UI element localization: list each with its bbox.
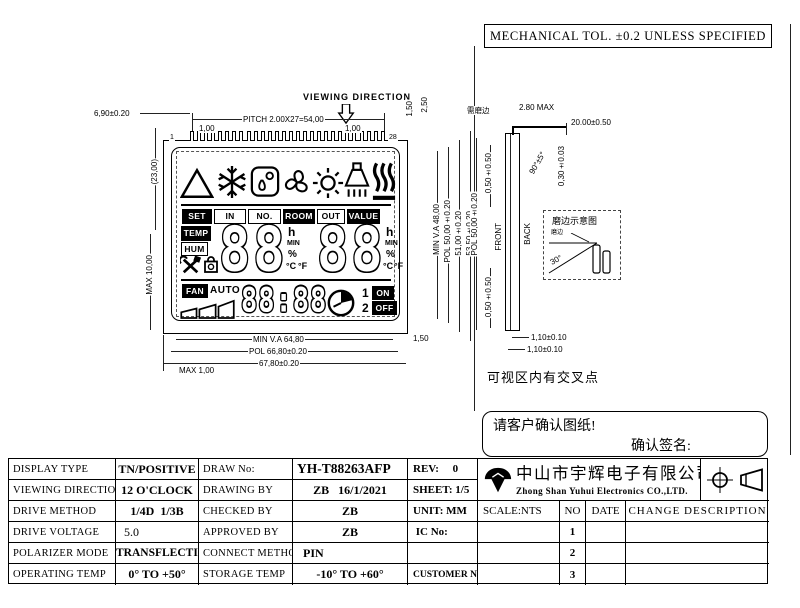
dim-lead-length: 6,90±0.20 xyxy=(93,109,131,118)
projection-symbol-icon xyxy=(705,465,765,495)
info-cell-customer: CUSTOMER No. xyxy=(408,564,478,585)
dim-right-pol: POL 50,00±0.20 xyxy=(443,199,452,264)
spec-label-cell: DISPLAY TYPE xyxy=(9,459,116,480)
doc-label: DRAW No: xyxy=(199,464,255,475)
unit-min-right: MIN xyxy=(385,240,398,247)
dim-pitch: PITCH 2.00X27=54,00 xyxy=(242,115,325,124)
company-name-cn: 中山市宇辉电子有限公司 xyxy=(516,460,701,484)
pin xyxy=(275,131,279,141)
dim-side-top-max: 2.80 MAX xyxy=(518,103,555,112)
rev-date-cell xyxy=(586,522,626,543)
doc-value: PIN xyxy=(293,546,407,561)
doc-value: ZB xyxy=(293,504,407,519)
sign-label: 确认签名: xyxy=(631,435,691,455)
dim-bottom-va: MIN V.A 64,80 xyxy=(252,335,305,344)
doc-value-cell: ZB 16/1/2021 xyxy=(293,480,408,501)
hood-icon xyxy=(344,161,370,201)
dim-gap-right: 1,00 xyxy=(344,124,362,133)
spec-value-cell: 12 O'CLOCK xyxy=(116,480,199,501)
lcd-label-hum: HUM xyxy=(181,242,208,256)
pin xyxy=(324,131,328,141)
doc-value: YH-T88263AFP xyxy=(293,461,407,477)
projection-symbol-cell xyxy=(701,459,769,501)
dim-lead-line xyxy=(140,113,190,114)
doc-value-cell: ZB xyxy=(293,501,408,522)
rev-desc-cell xyxy=(626,522,769,543)
unit-min-left: MIN xyxy=(287,240,300,247)
pin xyxy=(317,131,321,141)
doc-label: DRAWING BY xyxy=(199,485,273,496)
spec-value: TN/POSITIVE xyxy=(116,462,198,477)
doc-label: STORAGE TEMP xyxy=(199,569,285,580)
viewing-direction-label: VIEWING DIRECTION xyxy=(302,93,412,102)
dim-gap-left: 1,00 xyxy=(198,124,216,133)
spec-value: 0° TO +50° xyxy=(116,567,198,582)
separator-line-1 xyxy=(181,204,391,206)
main-digits-left: 88 xyxy=(219,227,288,274)
doc-label-cell: CHECKED BY xyxy=(199,501,293,522)
spec-label: DRIVE VOLTAGE xyxy=(9,527,99,538)
rev-no-2: 2 xyxy=(570,547,576,559)
rev-date-cell xyxy=(586,564,626,585)
lcd-label-room: ROOM xyxy=(283,209,315,224)
dim-side-b2-line xyxy=(508,349,525,350)
dim-left-max: MAX 10,00 xyxy=(145,254,154,296)
unit-pct-right: % xyxy=(386,249,395,260)
side-back-label: BACK xyxy=(523,222,532,246)
unit-pct-left: % xyxy=(288,249,297,260)
rev-date-cell xyxy=(586,543,626,564)
doc-value-cell: PIN xyxy=(293,543,408,564)
doc-value: ZB xyxy=(293,525,407,540)
side-view-layer-line xyxy=(510,134,511,330)
title-block: DISPLAY TYPE TN/POSITIVE VIEWING DIRECTI… xyxy=(8,458,768,584)
rev-no-cell: 2 xyxy=(560,543,586,564)
pin xyxy=(247,131,251,141)
dim-top-t1: 1,50 xyxy=(405,100,414,118)
lock-icon xyxy=(204,256,218,273)
dim-side-b1-line xyxy=(512,337,529,338)
pin xyxy=(289,131,293,141)
lcd-label-fan: FAN xyxy=(182,284,208,298)
info-unit: UNIT: MM xyxy=(408,505,467,517)
lcd-label-auto: AUTO xyxy=(210,285,240,296)
side-grind-note: 需磨边 xyxy=(466,106,491,115)
doc-label: CONNECT METHOD xyxy=(199,548,293,559)
spec-value: 1/4D 1/3B xyxy=(116,504,198,519)
pin xyxy=(331,131,335,141)
unit-h-left: h xyxy=(288,225,295,239)
rev-no-cell: 3 xyxy=(560,564,586,585)
doc-label: APPROVED BY xyxy=(199,527,279,538)
confirm-box: 请客户确认图纸! 确认签名: xyxy=(482,411,768,457)
rev-header-no-label: NO xyxy=(565,505,581,517)
side-front-label: FRONT xyxy=(494,222,503,252)
doc-label-cell: CONNECT METHOD xyxy=(199,543,293,564)
company-logo xyxy=(483,466,513,494)
dim-right-glass: 51,00±0.20 xyxy=(454,210,463,257)
dim-side-b2: 1,10±0.10 xyxy=(526,345,564,354)
info-cell-blank xyxy=(408,543,478,564)
snowflake-icon xyxy=(216,162,248,202)
pin xyxy=(310,131,314,141)
rev-blank-cell xyxy=(478,564,560,585)
dim-side-bot-off: 0,50±0.50 xyxy=(484,276,493,318)
dim-side-pin-th: 0,30±0.03 xyxy=(557,145,566,187)
dim-bottom-pol: POL 66,80±0.20 xyxy=(248,347,308,356)
scale-label: SCALE:NTS xyxy=(478,505,542,517)
lcd-label-temp: TEMP xyxy=(181,226,211,241)
pin xyxy=(190,131,194,141)
pin xyxy=(254,131,258,141)
spec-value: TRANSFLECTIVE xyxy=(116,547,198,559)
spec-label: POLARIZER MODE xyxy=(9,548,109,559)
rev-header-date-label: DATE xyxy=(591,505,619,517)
spec-label: OPERATING TEMP xyxy=(9,569,106,580)
grind-detail-box: 磨边示意图 磨边 30° xyxy=(543,210,621,280)
dim-side-angle: 90°±5° xyxy=(527,149,548,176)
dim-side-pin-tick xyxy=(566,123,567,135)
pin xyxy=(374,131,378,141)
pin xyxy=(303,131,307,141)
spec-label: DISPLAY TYPE xyxy=(9,464,88,475)
lcd-label-off: OFF xyxy=(372,301,397,315)
spec-label: VIEWING DIRECTION xyxy=(9,485,116,496)
defrost-icon xyxy=(250,165,280,198)
info-sheet: SHEET: 1/5 xyxy=(408,484,469,496)
fan-icon xyxy=(282,166,312,199)
pin xyxy=(218,131,222,141)
rev-header-no: NO xyxy=(560,501,586,522)
pin-number-last: 28 xyxy=(388,133,398,142)
dim-side-pol: POL 50,00±0.20 xyxy=(470,192,479,257)
rev-desc-cell xyxy=(626,543,769,564)
unit-f-left: °F xyxy=(298,261,307,271)
rev-blank-cell xyxy=(478,522,560,543)
spec-label-cell: VIEWING DIRECTION xyxy=(9,480,116,501)
doc-label: CHECKED BY xyxy=(199,506,273,517)
pin xyxy=(261,131,265,141)
dim-top-t2: 2,50 xyxy=(420,96,429,114)
dim-right-bottom: 1,50 xyxy=(412,334,430,343)
warning-triangle-icon xyxy=(180,167,214,200)
rev-desc-cell xyxy=(626,564,769,585)
frame-right-line xyxy=(790,24,791,455)
spec-value-cell: TRANSFLECTIVE xyxy=(116,543,199,564)
rev-header-desc-label: CHANGE DESCRIPTION xyxy=(628,505,766,517)
pin xyxy=(296,131,300,141)
side-view-glass xyxy=(505,133,520,331)
doc-value-cell: -10° TO +60° xyxy=(293,564,408,585)
info-cell-unit: UNIT: MM xyxy=(408,501,478,522)
grind-detail-sketch: 30° xyxy=(545,233,619,277)
dim-side-pin-len: 20.00±0.50 xyxy=(570,118,612,127)
dim-right-va: MIN V.A 48,00 xyxy=(432,203,441,256)
doc-label-cell: DRAW No: xyxy=(199,459,293,480)
spec-value-cell: TN/POSITIVE xyxy=(116,459,199,480)
rev-no-1: 1 xyxy=(570,526,576,538)
info-ic-no: IC No: xyxy=(408,526,448,538)
spec-label-cell: DRIVE METHOD xyxy=(9,501,116,522)
pin xyxy=(381,131,385,141)
tolerance-box: MECHANICAL TOL. ±0.2 UNLESS SPECIFIED xyxy=(484,24,772,48)
main-digits-right: 88 xyxy=(317,227,386,274)
spec-value-cell: 0° TO +50° xyxy=(116,564,199,585)
spec-value: 5.0 xyxy=(116,525,198,540)
doc-label-cell: APPROVED BY xyxy=(199,522,293,543)
rev-header-date: DATE xyxy=(586,501,626,522)
dim-pitch-tick-right xyxy=(384,113,385,131)
cross-point-note: 可视区内有交叉点 xyxy=(487,367,599,386)
spec-label-cell: POLARIZER MODE xyxy=(9,543,116,564)
sun-icon xyxy=(312,167,344,199)
pin xyxy=(239,131,243,141)
company-cell: 中山市宇辉电子有限公司 Zhong Shan Yuhui Electronics… xyxy=(478,459,701,501)
side-view-pin-bend xyxy=(512,126,566,128)
clock-icon xyxy=(326,288,356,318)
grind-detail-title: 磨边示意图 xyxy=(552,214,597,227)
lcd-label-on: ON xyxy=(372,286,394,300)
lcd-label-set: SET xyxy=(182,209,212,224)
spec-label-cell: OPERATING TEMP xyxy=(9,564,116,585)
doc-value: -10° TO +60° xyxy=(293,567,407,582)
clock-digits: 88:88 xyxy=(241,285,327,318)
company-name-en: Zhong Shan Yuhui Electronics CO.,LTD. xyxy=(516,486,701,496)
viewing-direction-arrow-icon xyxy=(337,104,355,124)
dim-side-b1: 1,10±0.10 xyxy=(530,333,568,342)
unit-h-right: h xyxy=(386,225,393,239)
pin xyxy=(282,131,286,141)
tools-icon xyxy=(180,256,202,275)
info-cell-ic: IC No: xyxy=(408,522,478,543)
timer-2-digit: 2 xyxy=(362,301,369,315)
spec-value-cell: 5.0 xyxy=(116,522,199,543)
doc-value: ZB 16/1/2021 xyxy=(293,483,407,498)
pin xyxy=(338,131,342,141)
dim-pitch-tick-left xyxy=(192,113,193,131)
scale-cell: SCALE:NTS xyxy=(478,501,560,522)
dim-bottom-total: 67,80±0.20 xyxy=(258,359,300,368)
drawing-sheet: MECHANICAL TOL. ±0.2 UNLESS SPECIFIED VI… xyxy=(0,0,800,608)
doc-value-cell: ZB xyxy=(293,522,408,543)
heat-icon xyxy=(372,159,396,203)
rev-header-desc: CHANGE DESCRIPTION xyxy=(626,501,769,522)
pin-number-first: 1 xyxy=(169,133,175,142)
unit-f-right: °F xyxy=(394,261,403,271)
dim-bottom-max: MAX 1,00 xyxy=(178,366,215,375)
doc-label-cell: DRAWING BY xyxy=(199,480,293,501)
pin xyxy=(268,131,272,141)
spec-label-cell: DRIVE VOLTAGE xyxy=(9,522,116,543)
rev-no-cell: 1 xyxy=(560,522,586,543)
pin xyxy=(225,131,229,141)
info-cell-sheet: SHEET: 1/5 xyxy=(408,480,478,501)
timer-1-digit: 1 xyxy=(362,286,369,300)
dim-bottom-tick xyxy=(163,335,164,371)
rev-no-3: 3 xyxy=(570,569,576,581)
doc-value-cell: YH-T88263AFP xyxy=(293,459,408,480)
pin xyxy=(232,131,236,141)
spec-label: DRIVE METHOD xyxy=(9,506,96,517)
info-rev: REV: 0 xyxy=(408,463,458,475)
pin xyxy=(367,131,371,141)
rev-blank-cell xyxy=(478,543,560,564)
fan-speed-bars-icon xyxy=(180,298,236,319)
doc-label-cell: STORAGE TEMP xyxy=(199,564,293,585)
spec-value-cell: 1/4D 1/3B xyxy=(116,501,199,522)
dim-side-top-off: 0,50±0.50 xyxy=(484,152,493,194)
confirm-note: 请客户确认图纸! xyxy=(493,415,596,435)
spec-value: 12 O'CLOCK xyxy=(116,483,198,498)
dim-left-height: (23,00) xyxy=(150,158,159,185)
info-customer: CUSTOMER No. xyxy=(408,570,478,580)
info-cell-rev: REV: 0 xyxy=(408,459,478,480)
tolerance-note: MECHANICAL TOL. ±0.2 UNLESS SPECIFIED xyxy=(490,29,766,44)
